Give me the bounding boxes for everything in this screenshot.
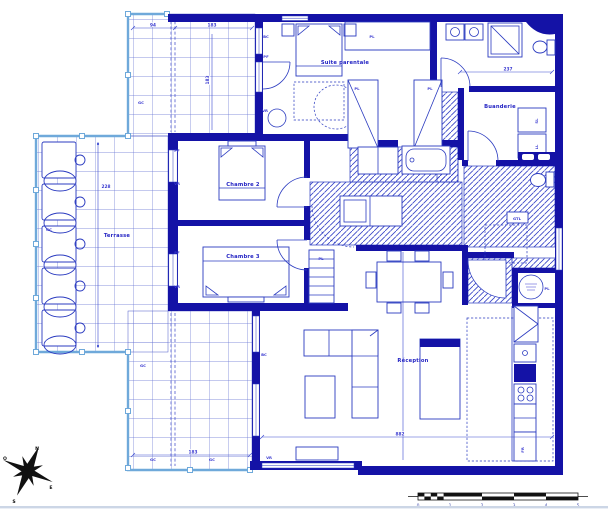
dim-94: 94	[150, 23, 156, 29]
dim-237: 237	[504, 67, 513, 73]
label-gc-2: GC	[46, 227, 52, 232]
bathtub	[402, 146, 450, 174]
suite-bed	[296, 24, 342, 76]
compass-west: O	[3, 456, 7, 462]
label-pl-4: PL	[318, 256, 324, 261]
label-vr-4: VR	[266, 455, 272, 460]
console	[296, 447, 338, 460]
label-pl-5: PL	[544, 286, 550, 291]
label-fr: FR	[520, 447, 525, 453]
dim-183-bottom: 183	[189, 450, 198, 456]
label-gtl: GTL	[513, 216, 522, 221]
label-pl-1: PL	[369, 34, 375, 39]
label-terrasse: Terrasse	[104, 233, 131, 239]
bath-vanity-2	[358, 147, 398, 174]
entry-bench	[340, 196, 402, 226]
oven	[514, 364, 536, 382]
corridor-toilet	[531, 172, 555, 187]
label-gc-3: GC	[140, 363, 146, 368]
sideboard	[420, 339, 460, 419]
coffee-table	[305, 376, 335, 418]
kitchen-sink	[514, 344, 536, 362]
chambre2-room	[219, 141, 265, 200]
floor-plan-drawing: Terrasse Chambre 2 Chambre 3 Suite paren…	[0, 0, 608, 513]
label-chambre3: Chambre 3	[226, 254, 260, 260]
label-gc-1: GC	[138, 100, 144, 105]
terrace-tiles-top	[128, 14, 255, 136]
compass-north: N	[35, 446, 39, 452]
dryer	[518, 108, 546, 132]
label-pf-1: PF	[174, 148, 180, 153]
label-ll: LL	[534, 144, 539, 149]
label-pf-2: PF	[174, 250, 180, 255]
chambre2-bed	[219, 141, 265, 200]
fridge	[514, 432, 536, 461]
label-buanderie: Buanderie	[484, 104, 516, 110]
label-bc-2: BC	[261, 352, 267, 357]
label-gc-4: GC	[150, 457, 156, 462]
label-vr-3: VR	[262, 108, 268, 113]
label-pf-3: PF	[263, 54, 269, 59]
terrace-tiles-bottom	[128, 311, 252, 470]
label-vr-1: VR	[174, 181, 180, 186]
tall-cupboard	[514, 306, 538, 342]
label-chambre2: Chambre 2	[226, 182, 260, 188]
dim-882: 882	[396, 432, 405, 438]
label-sl: SL	[534, 118, 539, 124]
dim-183-vert: 183	[205, 76, 211, 85]
compass-south: S	[12, 499, 15, 505]
label-gc-5: GC	[209, 457, 215, 462]
label-pl-3: PL	[427, 86, 433, 91]
dim-228: 228	[102, 184, 111, 190]
shower	[488, 23, 522, 57]
suite-nightstand-left	[282, 24, 294, 36]
floor-plan-page: Terrasse Chambre 2 Chambre 3 Suite paren…	[0, 0, 608, 513]
label-pl-2: PL	[354, 86, 360, 91]
cooktop	[514, 384, 536, 404]
label-vr-2: VR	[174, 284, 180, 289]
compass-east: E	[49, 485, 52, 491]
label-bc-1: BC	[263, 34, 269, 39]
label-reception: Réception	[397, 357, 428, 364]
label-suite: Suite parentale	[321, 60, 370, 66]
dim-183-top: 183	[208, 23, 217, 29]
suite-nightstand-right	[344, 24, 356, 36]
sheet-bottom-edge	[0, 506, 608, 508]
